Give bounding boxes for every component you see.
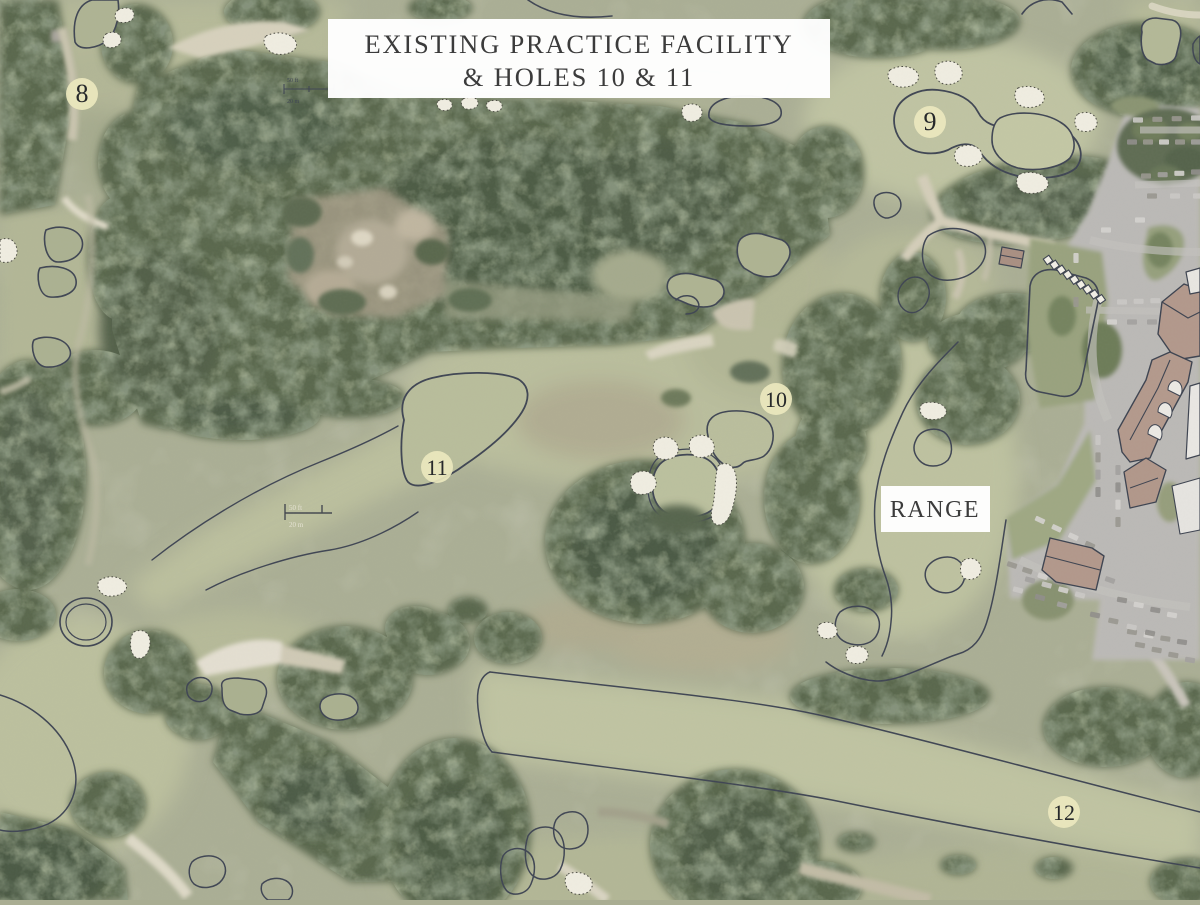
- svg-text:11: 11: [426, 455, 447, 480]
- svg-text:8: 8: [76, 79, 89, 108]
- svg-text:& HOLES 10 & 11: & HOLES 10 & 11: [463, 62, 695, 92]
- svg-text:RANGE: RANGE: [890, 497, 980, 523]
- svg-text:10: 10: [765, 387, 787, 412]
- svg-text:9: 9: [924, 107, 937, 136]
- svg-text:12: 12: [1053, 800, 1075, 825]
- svg-text:EXISTING PRACTICE FACILITY: EXISTING PRACTICE FACILITY: [364, 29, 793, 59]
